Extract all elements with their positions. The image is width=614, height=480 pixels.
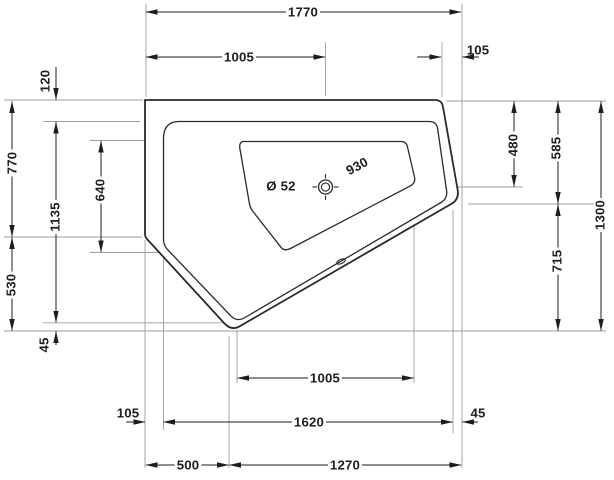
dim-right-upper: 585 <box>549 135 564 162</box>
dim-right-lower: 715 <box>550 248 565 275</box>
dim-left-lower: 530 <box>4 272 19 299</box>
dim-rim-top: 120 <box>38 70 53 93</box>
dim-inner-rim-width-bottom: 1620 <box>292 415 326 430</box>
dim-label-rim-top: 120 <box>38 70 53 93</box>
dim-label-right-lower: 715 <box>550 250 565 273</box>
dim-inner-rim-height: 1135 <box>48 200 63 234</box>
dim-label-vertex-to-right: 1270 <box>330 458 360 473</box>
dim-overall-depth: 1300 <box>593 198 608 232</box>
dim-label-inner-rim-height: 1135 <box>48 202 63 231</box>
dim-label-drain-from-left: 1005 <box>224 50 254 65</box>
dim-label-bottom-right-offset: 45 <box>470 406 485 421</box>
dim-basin-width-bottom: 1005 <box>308 371 342 386</box>
tub-outer-outline <box>145 100 458 328</box>
dim-vertex-from-left: 500 <box>175 458 202 473</box>
dim-label-inner-rim-width-bottom: 1620 <box>294 415 324 430</box>
dim-vertex-to-right: 1270 <box>328 458 362 473</box>
dim-inner-vertex-offset: 45 <box>37 337 52 352</box>
dim-label-vertex-from-left: 500 <box>177 458 200 473</box>
dim-label-basin-width-bottom: 1005 <box>310 371 340 386</box>
dim-label-right-upper: 585 <box>549 137 564 160</box>
dim-label-left-upper: 770 <box>5 152 20 175</box>
dim-label-top-right-offset: 105 <box>467 43 490 58</box>
dim-basin-height: 640 <box>93 177 108 204</box>
dim-label-inner-vertex-offset: 45 <box>37 337 52 352</box>
dim-label-bottom-left-offset: 105 <box>117 406 140 421</box>
dim-drain-from-left: 1005 <box>222 50 256 65</box>
dim-label-drain-diameter: Ø 52 <box>266 179 295 194</box>
dim-label-drain-from-top: 480 <box>506 134 521 157</box>
dim-overall-width: 1770 <box>286 5 320 20</box>
bathtub-outline <box>145 100 458 328</box>
bathtub-technical-drawing: 1770 1005 105 120 770 1135 640 530 45 <box>0 0 614 480</box>
dim-label-basin-height: 640 <box>93 179 108 202</box>
dim-drain-from-top: 480 <box>506 132 521 159</box>
dim-label-left-lower: 530 <box>4 274 19 297</box>
dim-label-overall-depth: 1300 <box>593 200 608 230</box>
dim-label-overall-width: 1770 <box>288 5 318 20</box>
dim-left-upper: 770 <box>5 150 20 177</box>
